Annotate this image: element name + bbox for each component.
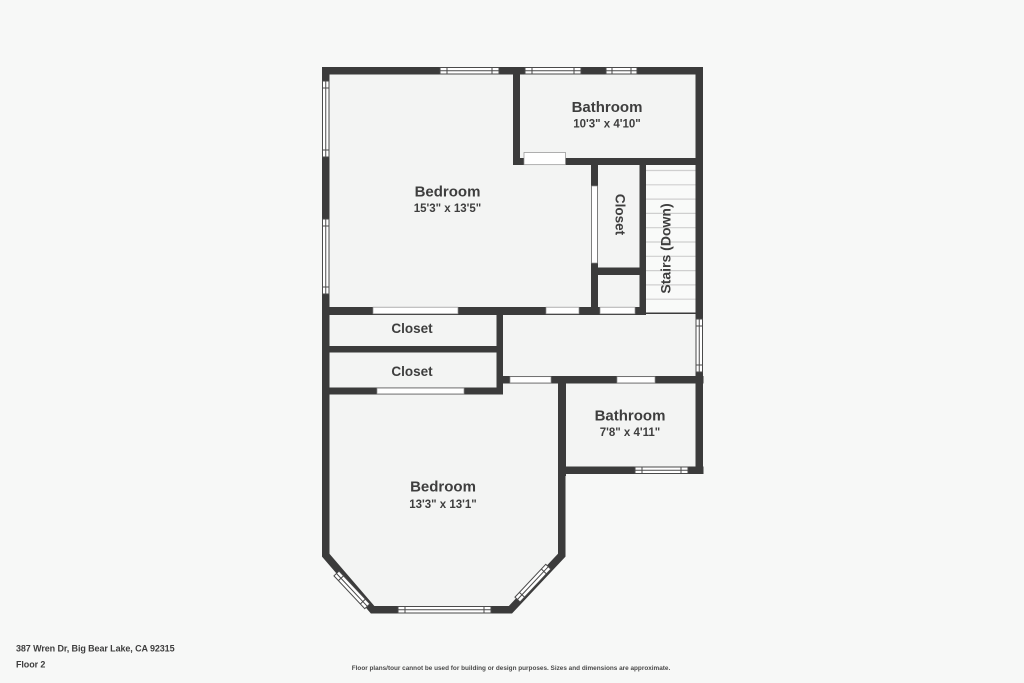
svg-text:15'3" x 13'5": 15'3" x 13'5" — [414, 203, 482, 215]
svg-text:Bathroom: Bathroom — [572, 99, 643, 116]
svg-text:387 Wren Dr, Big Bear Lake, CA: 387 Wren Dr, Big Bear Lake, CA 92315 — [16, 644, 175, 654]
svg-text:Bathroom: Bathroom — [595, 408, 666, 425]
svg-text:Closet: Closet — [391, 321, 433, 336]
svg-text:Closet: Closet — [391, 364, 433, 379]
svg-text:Stairs (Down): Stairs (Down) — [658, 203, 674, 293]
svg-text:13'3" x 13'1": 13'3" x 13'1" — [409, 499, 477, 511]
svg-text:7'8" x 4'11": 7'8" x 4'11" — [600, 427, 661, 439]
svg-text:10'3" x 4'10": 10'3" x 4'10" — [573, 119, 641, 131]
svg-text:Floor plans/tour cannot be use: Floor plans/tour cannot be used for buil… — [352, 665, 671, 672]
svg-text:Bedroom: Bedroom — [415, 184, 481, 201]
svg-text:Closet: Closet — [613, 194, 628, 236]
svg-text:Floor 2: Floor 2 — [16, 660, 45, 670]
svg-text:Bedroom: Bedroom — [410, 479, 476, 496]
